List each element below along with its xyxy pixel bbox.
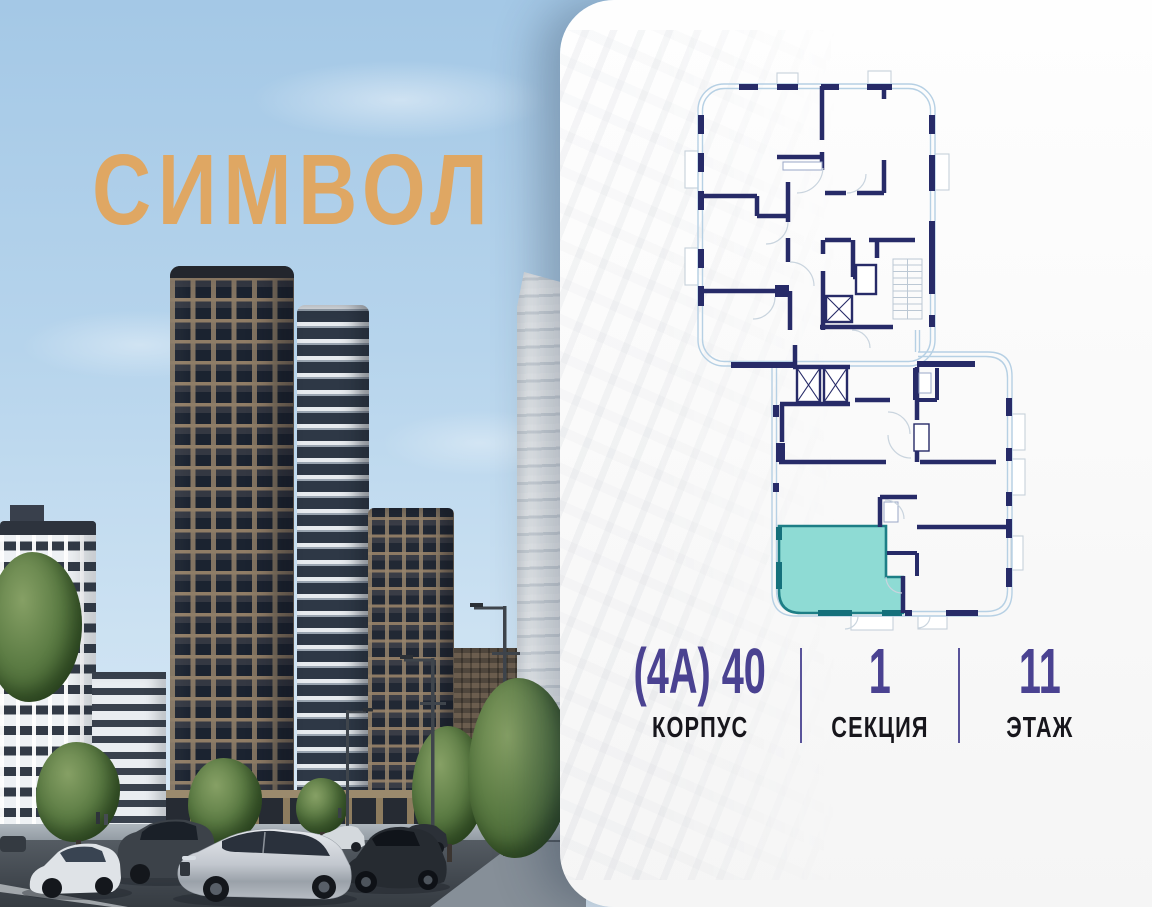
etazh-label: ЭТАЖ xyxy=(1006,712,1073,745)
pedestrians xyxy=(96,808,342,825)
sektsiya-label: СЕКЦИЯ xyxy=(831,712,928,745)
details-panel: (4А) 40 КОРПУС 1 СЕКЦИЯ 11 ЭТАЖ xyxy=(560,0,1152,907)
unit-info-row: (4А) 40 КОРПУС 1 СЕКЦИЯ 11 ЭТАЖ xyxy=(600,644,1120,745)
brand-logo: СИМВОЛ xyxy=(92,140,494,240)
korpus-label: КОРПУС xyxy=(652,712,748,745)
floor-plan xyxy=(670,55,1040,645)
elevator-icon xyxy=(797,265,876,402)
etazh-value: 11 xyxy=(1019,644,1061,698)
screenshot-root: СИМВОЛ xyxy=(0,0,1152,907)
highlighted-apartment[interactable] xyxy=(779,526,903,613)
korpus-value: (4А) 40 xyxy=(634,644,766,698)
car-sedan-white xyxy=(22,844,132,900)
info-sektsiya: 1 СЕКЦИЯ xyxy=(802,644,958,745)
sektsiya-value: 1 xyxy=(869,644,891,698)
cloud xyxy=(250,60,550,140)
info-korpus: (4А) 40 КОРПУС xyxy=(600,644,800,745)
stairs-icon xyxy=(893,259,922,319)
info-etazh: 11 ЭТАЖ xyxy=(960,644,1120,745)
